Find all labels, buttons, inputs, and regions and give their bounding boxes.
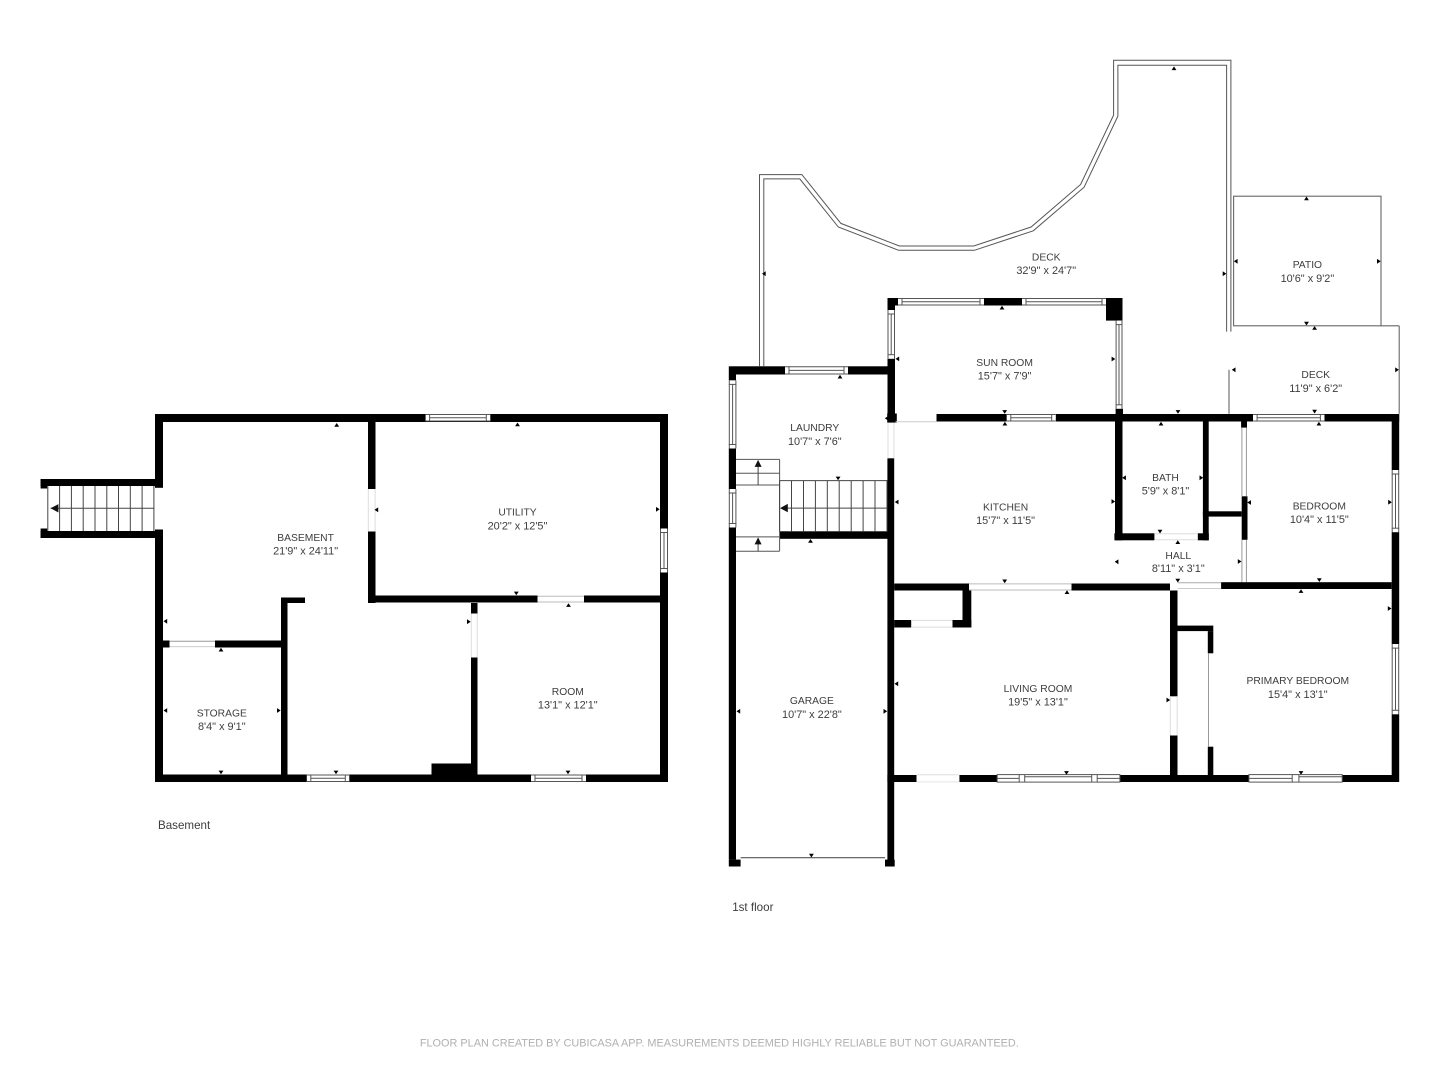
svg-text:PATIO: PATIO — [1293, 260, 1322, 271]
svg-text:KITCHEN: KITCHEN — [983, 502, 1028, 513]
svg-text:21'9" x 24'11": 21'9" x 24'11" — [273, 546, 338, 558]
svg-text:19'5" x 13'1": 19'5" x 13'1" — [1008, 697, 1068, 709]
svg-text:8'4" x 9'1": 8'4" x 9'1" — [198, 721, 246, 733]
svg-text:32'9" x 24'7": 32'9" x 24'7" — [1016, 265, 1076, 277]
svg-text:Basement: Basement — [158, 819, 211, 832]
svg-text:GARAGE: GARAGE — [790, 696, 834, 707]
svg-text:LAUNDRY: LAUNDRY — [790, 423, 839, 434]
svg-text:BATH: BATH — [1152, 473, 1179, 484]
svg-text:FLOOR PLAN CREATED BY CUBICASA: FLOOR PLAN CREATED BY CUBICASA APP. MEAS… — [420, 1038, 1019, 1050]
svg-text:BEDROOM: BEDROOM — [1293, 501, 1346, 512]
svg-text:5'9" x 8'1": 5'9" x 8'1" — [1142, 486, 1190, 498]
svg-text:10'7" x 22'8": 10'7" x 22'8" — [782, 709, 842, 721]
svg-text:15'7" x 7'9": 15'7" x 7'9" — [978, 370, 1032, 382]
svg-text:DECK: DECK — [1032, 252, 1061, 263]
svg-text:HALL: HALL — [1165, 551, 1191, 562]
svg-text:PRIMARY BEDROOM: PRIMARY BEDROOM — [1246, 676, 1349, 687]
svg-text:DECK: DECK — [1301, 370, 1330, 381]
svg-text:13'1" x 12'1": 13'1" x 12'1" — [538, 699, 598, 711]
svg-text:1st floor: 1st floor — [732, 901, 773, 914]
svg-text:BASEMENT: BASEMENT — [277, 533, 334, 544]
svg-text:ROOM: ROOM — [552, 687, 584, 698]
svg-text:11'9" x 6'2": 11'9" x 6'2" — [1289, 383, 1342, 395]
svg-text:8'11" x 3'1": 8'11" x 3'1" — [1152, 563, 1205, 575]
svg-text:15'4" x 13'1": 15'4" x 13'1" — [1268, 689, 1328, 701]
svg-text:20'2" x 12'5": 20'2" x 12'5" — [488, 521, 548, 533]
svg-text:10'6" x 9'2": 10'6" x 9'2" — [1281, 273, 1335, 285]
svg-text:UTILITY: UTILITY — [498, 507, 536, 518]
svg-text:15'7" x 11'5": 15'7" x 11'5" — [976, 515, 1035, 527]
svg-text:LIVING ROOM: LIVING ROOM — [1004, 684, 1073, 695]
svg-text:SUN ROOM: SUN ROOM — [976, 358, 1033, 369]
svg-text:10'4" x 11'5": 10'4" x 11'5" — [1290, 514, 1349, 526]
svg-text:STORAGE: STORAGE — [197, 708, 247, 719]
svg-text:10'7" x 7'6": 10'7" x 7'6" — [788, 436, 842, 448]
